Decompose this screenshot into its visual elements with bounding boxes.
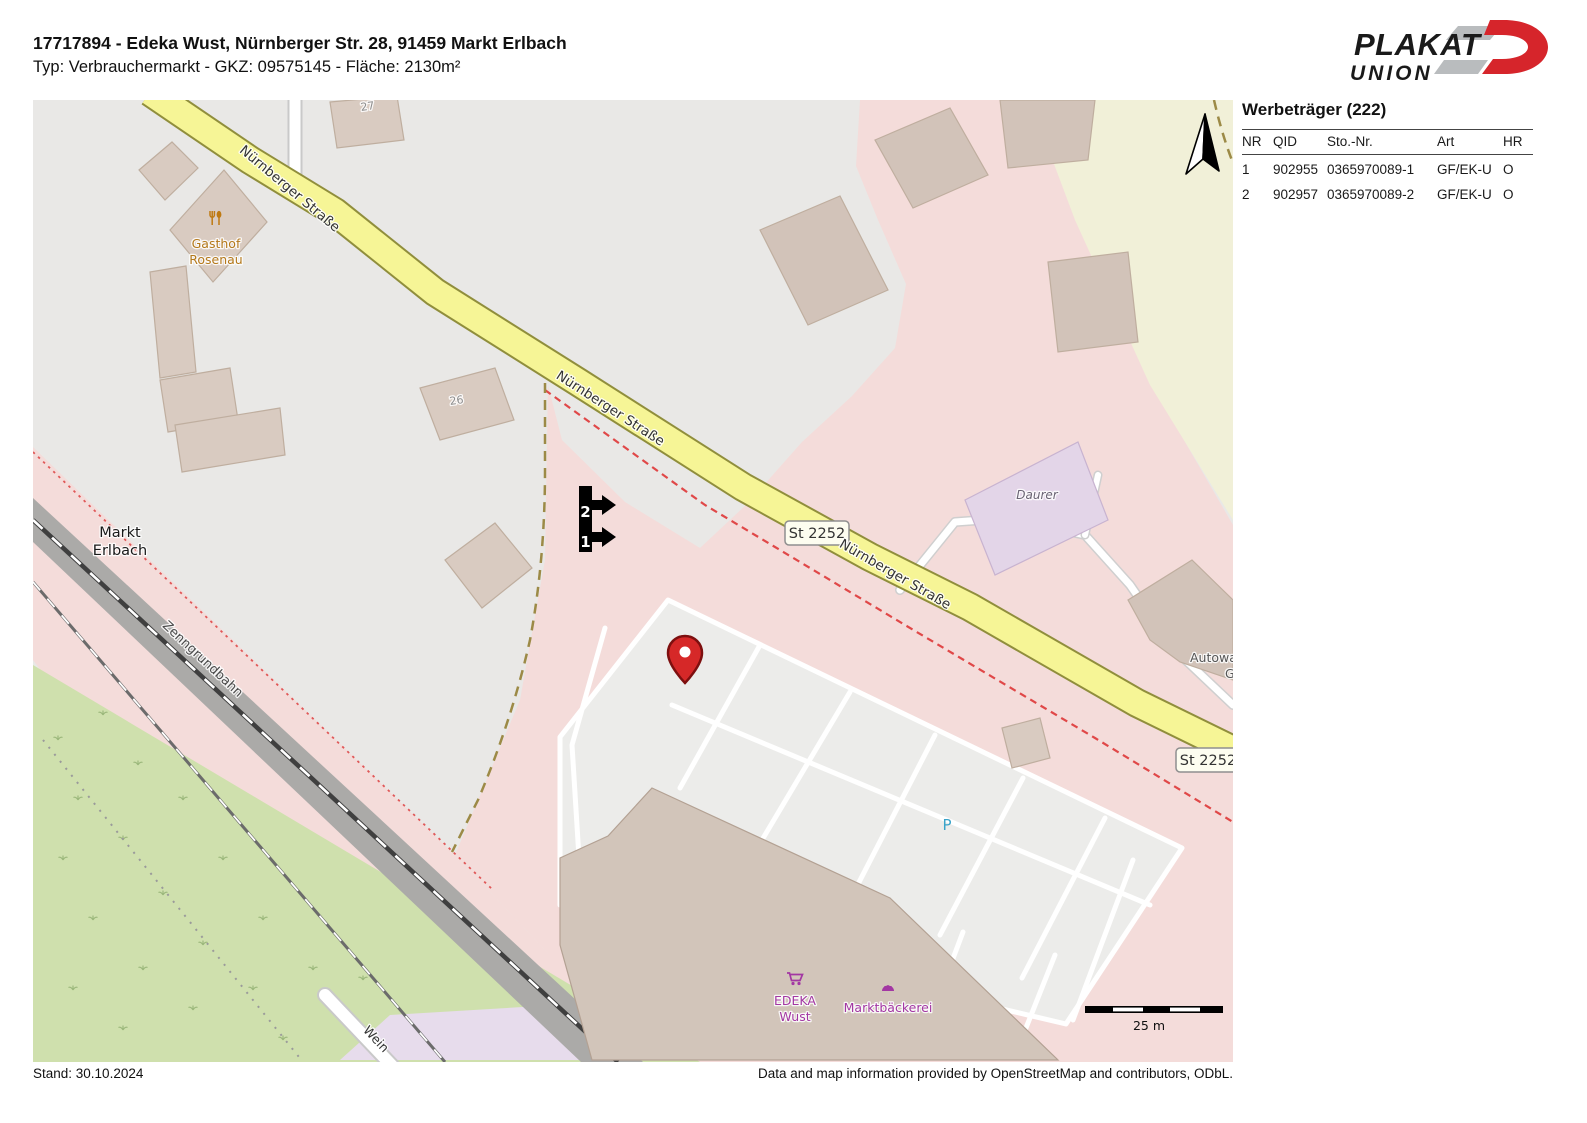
logo-word-plakat: PLAKAT [1354, 27, 1480, 63]
stand-date: Stand: 30.10.2024 [33, 1066, 143, 1081]
housenumber-label: 26 [449, 393, 465, 408]
logo-word-union: UNION [1350, 62, 1433, 86]
col-header-qid: QID [1273, 130, 1327, 155]
cell-sto: 0365970089-1 [1327, 155, 1437, 181]
scale-label: 25 m [1133, 1018, 1165, 1033]
svg-text:Marktbäckerei: Marktbäckerei [844, 1000, 933, 1015]
svg-text:Wust: Wust [779, 1009, 810, 1024]
road-shield: St 2252 [1176, 748, 1233, 772]
cell-hr: O [1503, 155, 1533, 181]
road-shield: St 2252 [785, 521, 849, 545]
cell-sto: 0365970089-2 [1327, 180, 1437, 205]
plakat-union-logo: PLAKAT UNION [1340, 14, 1555, 92]
table-row: 2 902957 0365970089-2 GF/EK-U O [1242, 180, 1533, 205]
page-title: 17717894 - Edeka Wust, Nürnberger Str. 2… [33, 33, 567, 54]
poi-label-autowash2: G [1225, 666, 1233, 681]
building-label-daurer: Daurer [1016, 488, 1059, 502]
cell-art: GF/EK-U [1437, 155, 1503, 181]
table-header-row: NR QID Sto.-Nr. Art HR [1242, 130, 1533, 155]
svg-text:Gasthof: Gasthof [192, 236, 241, 251]
svg-text:Rosenau: Rosenau [189, 252, 242, 267]
col-header-hr: HR [1503, 130, 1533, 155]
page-subtitle: Typ: Verbrauchermarkt - GKZ: 09575145 - … [33, 58, 460, 77]
cell-nr: 1 [1242, 155, 1273, 181]
svg-text:EDEKA: EDEKA [774, 993, 816, 1008]
cell-hr: O [1503, 180, 1533, 205]
panel-title: Werbeträger (222) [1242, 100, 1542, 120]
cell-qid: 902955 [1273, 155, 1327, 181]
svg-text:2: 2 [580, 503, 590, 521]
cell-qid: 902957 [1273, 180, 1327, 205]
report-page: 17717894 - Edeka Wust, Nürnberger Str. 2… [0, 0, 1587, 1123]
werbetraeger-table: NR QID Sto.-Nr. Art HR 1 902955 03659700… [1242, 129, 1533, 205]
table-row: 1 902955 0365970089-1 GF/EK-U O [1242, 155, 1533, 181]
cell-art: GF/EK-U [1437, 180, 1503, 205]
parking-label: P [942, 816, 951, 834]
cell-nr: 2 [1242, 180, 1273, 205]
svg-text:Erlbach: Erlbach [93, 543, 147, 559]
poi-label-autowash: Autowas [1190, 650, 1233, 665]
col-header-art: Art [1437, 130, 1503, 155]
map-attribution: Data and map information provided by Ope… [758, 1066, 1233, 1081]
svg-text:1: 1 [580, 533, 590, 551]
col-header-sto: Sto.-Nr. [1327, 130, 1437, 155]
col-header-nr: NR [1242, 130, 1273, 155]
map-canvas: St 2252 St 2252 Nürnberger Straße Nürnbe… [33, 100, 1233, 1062]
housenumber-label: 27 [360, 100, 376, 114]
svg-text:St 2252: St 2252 [789, 526, 845, 542]
svg-text:St 2252: St 2252 [1180, 753, 1233, 769]
svg-text:Markt: Markt [99, 525, 141, 541]
werbetraeger-panel: Werbeträger (222) NR QID Sto.-Nr. Art HR… [1242, 100, 1542, 205]
